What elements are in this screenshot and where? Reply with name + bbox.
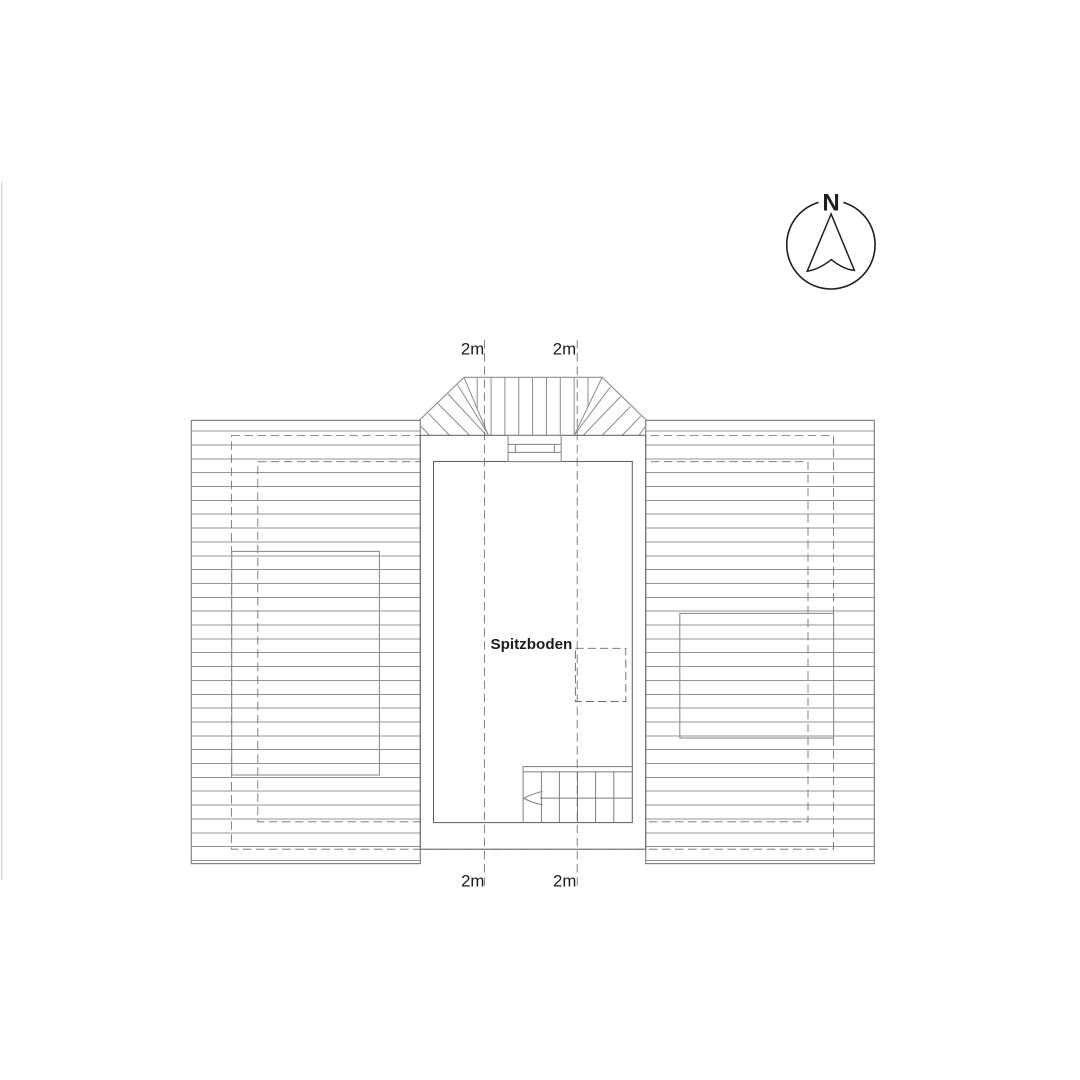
svg-text:2m: 2m — [553, 871, 576, 890]
svg-text:2m: 2m — [461, 871, 484, 890]
svg-text:2m: 2m — [553, 340, 576, 359]
svg-text:N: N — [822, 189, 839, 216]
svg-text:2m: 2m — [461, 340, 484, 359]
svg-text:Spitzboden: Spitzboden — [491, 636, 573, 653]
